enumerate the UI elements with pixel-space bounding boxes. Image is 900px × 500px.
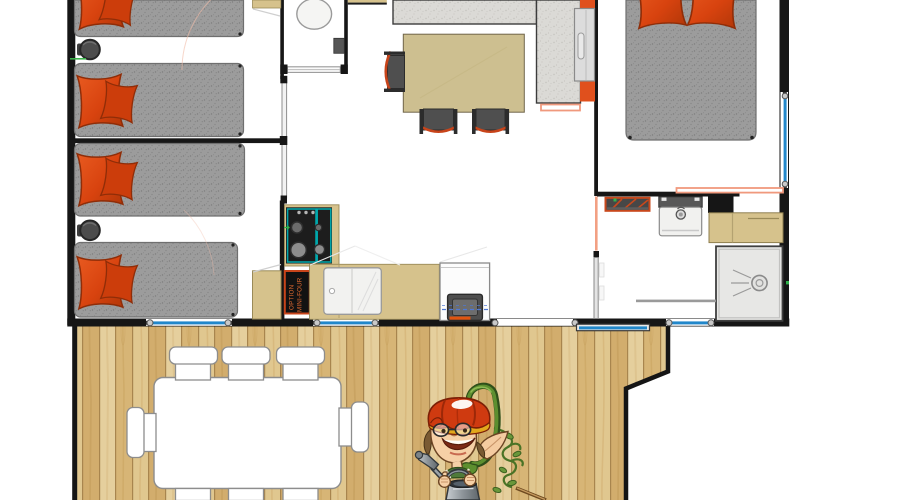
svg-text:OPTION: OPTION: [289, 284, 296, 310]
svg-text:MINI-FOUR: MINI-FOUR: [297, 277, 304, 312]
